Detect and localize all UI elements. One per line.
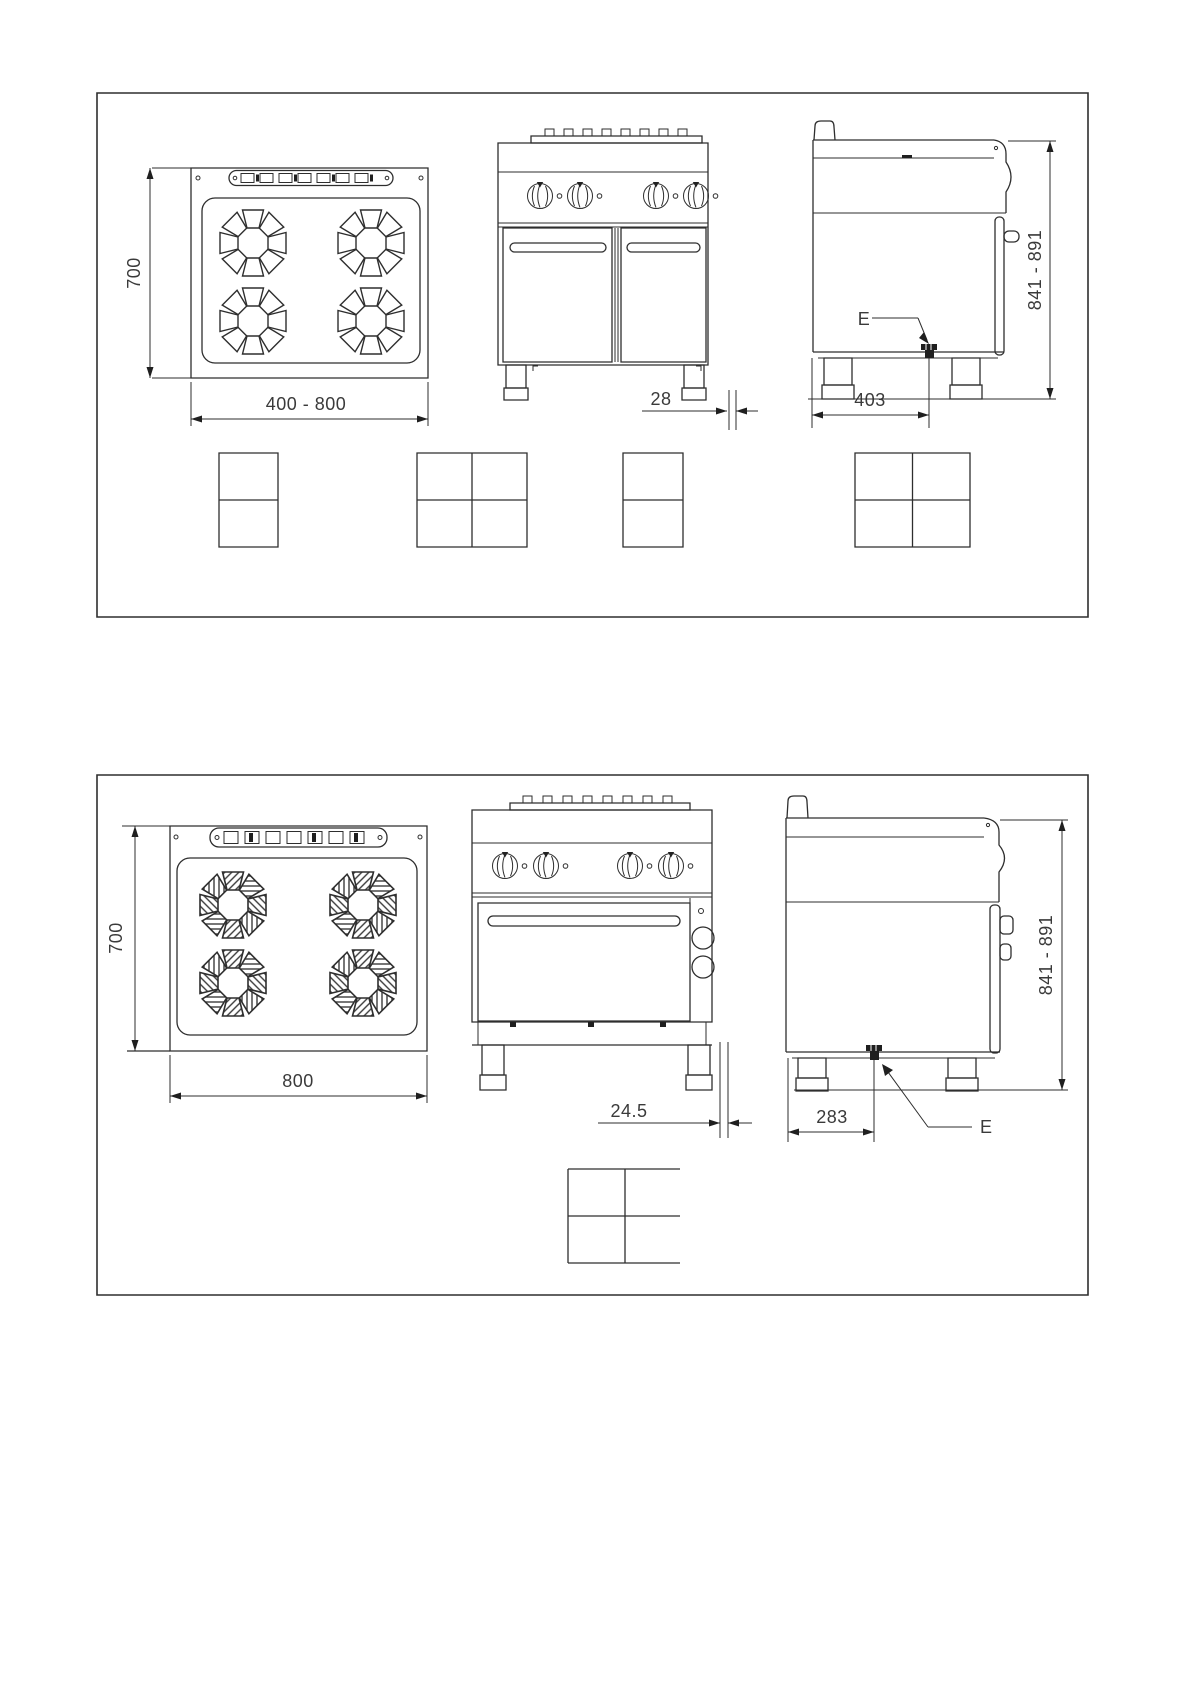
pilot-dot-icon — [563, 864, 568, 869]
spec-panel-bottom: 700 800 — [97, 775, 1088, 1295]
pilot-dot-icon — [522, 864, 527, 869]
control-knob-icon — [568, 182, 593, 209]
module-config-grid — [623, 453, 683, 547]
dimension-depth: 700 — [124, 168, 191, 378]
dimension-height: 841 - 891 — [794, 820, 1068, 1090]
dimension-gap: 24.5 — [598, 1042, 752, 1138]
pan-support-rack — [531, 129, 702, 143]
flue-icon — [787, 796, 808, 818]
connection-e-label: E — [858, 309, 871, 329]
oven-knob-side-icon — [1000, 916, 1013, 934]
pilot-dot-icon — [647, 864, 652, 869]
side-handle — [1004, 231, 1019, 242]
pan-support-rack — [510, 796, 690, 810]
legs — [822, 358, 982, 399]
dim-width-label: 400 - 800 — [266, 394, 347, 414]
module-config-grid — [219, 453, 278, 547]
burner-cluster-icon — [200, 950, 266, 1016]
burner-cluster-icon — [220, 288, 286, 354]
flue-icon — [814, 121, 835, 140]
pilot-dot-icon — [688, 864, 693, 869]
dim-gap-label: 24.5 — [610, 1101, 647, 1121]
leg-foot — [480, 1075, 506, 1090]
leg-foot — [504, 388, 528, 400]
cabinet-door — [503, 228, 612, 362]
front-view: 28 — [498, 129, 758, 430]
oven-knob-side-icon — [1000, 944, 1011, 960]
dim-height-label: 841 - 891 — [1025, 230, 1045, 311]
door-handle — [627, 243, 700, 252]
dimension-width: 400 - 800 — [191, 382, 428, 426]
connection-callout: E — [858, 309, 929, 344]
dimension-connection-depth: 283 — [788, 1058, 874, 1142]
leg-foot — [946, 1078, 978, 1091]
control-knob-icon — [493, 852, 518, 879]
side-view: E 403 841 - 891 — [808, 121, 1056, 428]
legs — [504, 365, 706, 400]
module-config-grids — [219, 453, 970, 547]
dimension-width: 800 — [170, 1055, 427, 1103]
manual-page: 700 400 - 800 — [0, 0, 1191, 1685]
burner-cluster-icon — [330, 872, 396, 938]
control-knob-icon — [618, 852, 643, 879]
dimension-gap: 28 — [642, 389, 758, 430]
oven-door-handle — [488, 916, 680, 926]
dim-gap-label: 28 — [650, 389, 671, 409]
plinth — [472, 1022, 712, 1045]
pilot-dot-icon — [673, 194, 678, 199]
control-knob-icon — [528, 182, 553, 209]
top-view: 700 800 — [106, 826, 427, 1103]
leg-foot — [796, 1078, 828, 1091]
module-config-grid — [417, 453, 527, 547]
spec-panel-top: 700 400 - 800 — [97, 93, 1088, 617]
dimension-height: 841 - 891 — [808, 141, 1056, 399]
leg-foot — [682, 388, 706, 400]
burner-cluster-icon — [338, 288, 404, 354]
legs — [480, 1045, 712, 1090]
module-config-grid — [568, 1169, 680, 1263]
connection-point-icon — [921, 344, 937, 358]
control-knob-icon — [534, 852, 559, 879]
oven-knob-icon — [692, 956, 714, 978]
dim-connection-depth-label: 283 — [816, 1107, 848, 1127]
connection-e-label: E — [980, 1117, 993, 1137]
oven-door — [478, 903, 690, 1021]
dim-depth-label: 700 — [106, 922, 126, 954]
pilot-dot-icon — [699, 909, 704, 914]
dim-height-label: 841 - 891 — [1036, 915, 1056, 996]
oven-knob-icon — [692, 927, 714, 949]
dim-width-label: 800 — [282, 1071, 314, 1091]
control-knob-icon — [644, 182, 669, 209]
screw-icon — [174, 835, 178, 839]
side-knob-profile — [994, 140, 1011, 213]
side-knob-profile — [984, 818, 1005, 902]
top-view: 700 400 - 800 — [124, 168, 428, 426]
leg-foot — [822, 385, 854, 399]
module-config-grid — [855, 453, 970, 547]
dim-connection-depth-label: 403 — [854, 390, 886, 410]
leg-foot — [950, 385, 982, 399]
pilot-dot-icon — [713, 194, 718, 199]
dimension-depth: 700 — [106, 826, 170, 1051]
control-strip — [210, 828, 387, 847]
dimension-connection-depth: 403 — [812, 358, 929, 428]
screw-icon — [419, 176, 423, 180]
burner-cluster-icon — [220, 210, 286, 276]
oven-control-stile — [690, 898, 714, 1022]
control-knob-icon — [684, 182, 709, 209]
screw-icon — [418, 835, 422, 839]
side-view: E 283 841 - 891 — [786, 796, 1068, 1142]
dim-depth-label: 700 — [124, 257, 144, 289]
cabinet-door — [621, 228, 706, 362]
burner-cluster-icon — [338, 210, 404, 276]
door-handle — [510, 243, 606, 252]
burner-cluster-icon — [200, 872, 266, 938]
leg-foot — [686, 1075, 712, 1090]
front-view: 24.5 — [472, 796, 752, 1138]
pilot-dot-icon — [557, 194, 562, 199]
burner-cluster-icon — [330, 950, 396, 1016]
door-side-profile — [990, 905, 1000, 1053]
screw-icon — [196, 176, 200, 180]
pilot-dot-icon — [597, 194, 602, 199]
control-knob-icon — [659, 852, 684, 879]
door-side-profile — [995, 217, 1004, 355]
control-strip — [229, 171, 393, 186]
